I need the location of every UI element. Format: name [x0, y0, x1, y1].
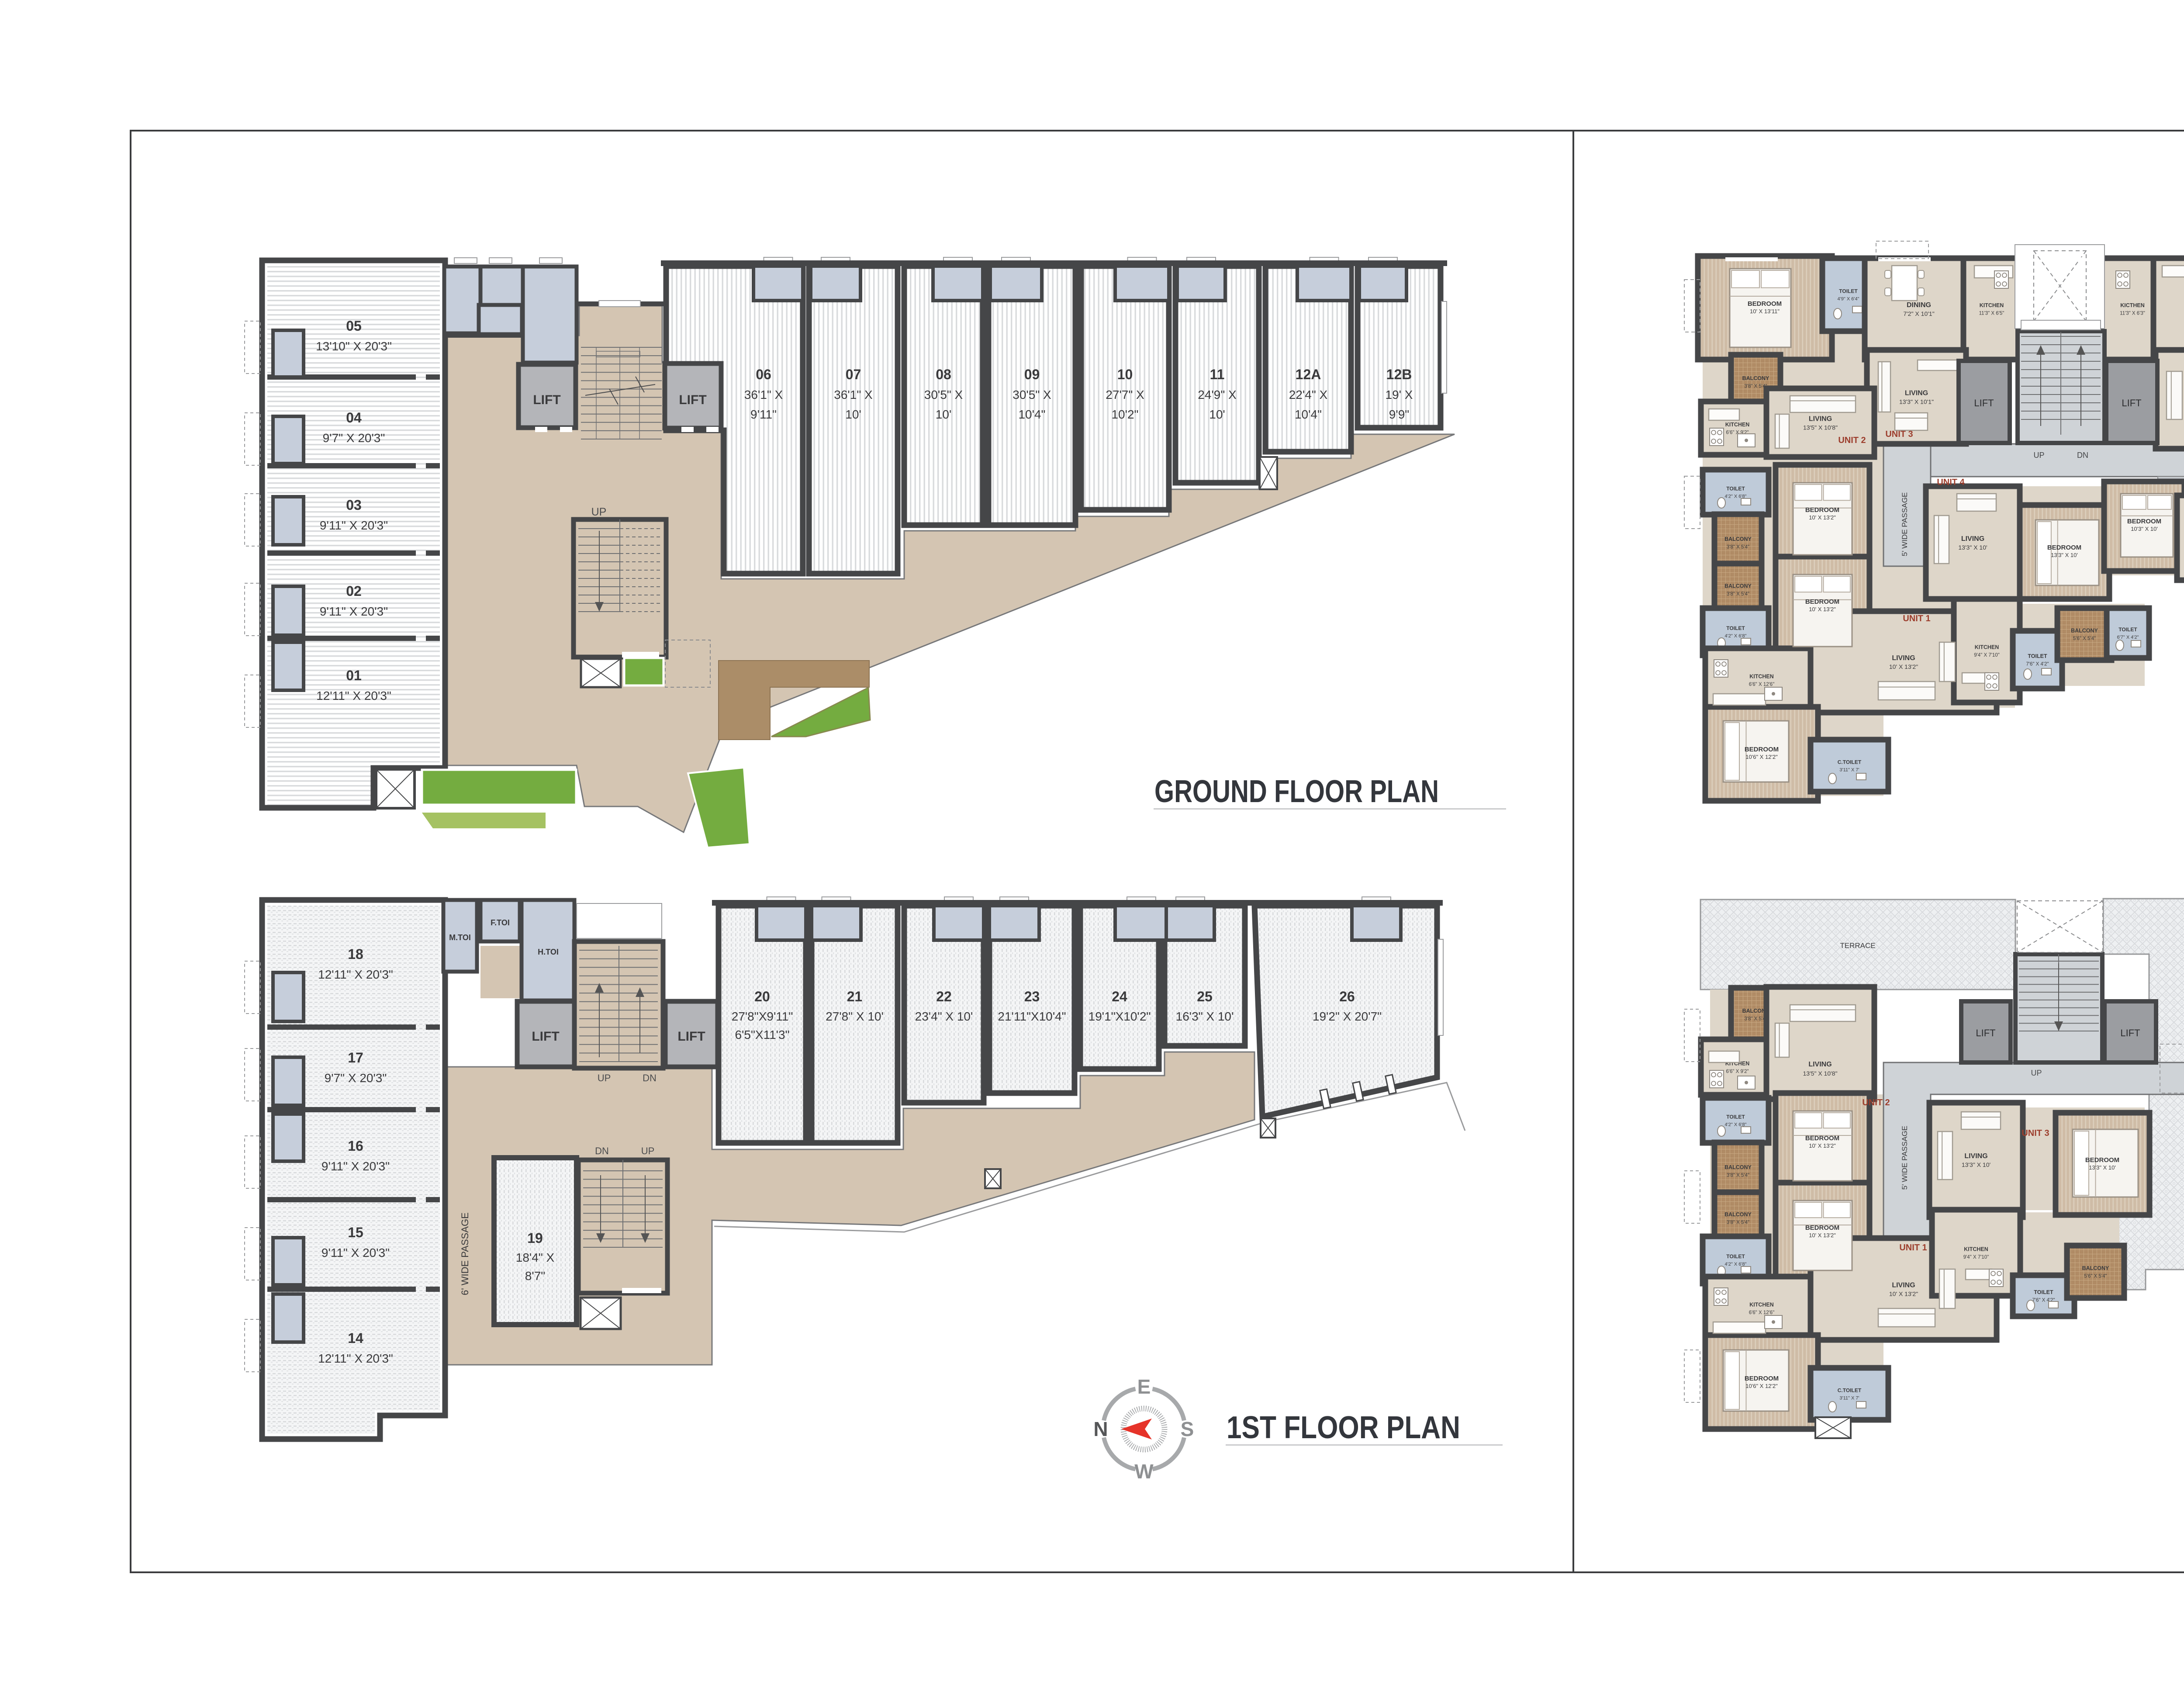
svg-text:27'8"X9'11": 27'8"X9'11" — [732, 1010, 793, 1023]
svg-text:12'11" X 20'3": 12'11" X 20'3" — [316, 689, 391, 702]
svg-text:UNIT 1: UNIT 1 — [1903, 614, 1930, 623]
svg-text:9'11": 9'11" — [750, 408, 777, 421]
svg-text:BEDROOM: BEDROOM — [1745, 746, 1779, 753]
svg-text:10' X 13'11": 10' X 13'11" — [1750, 308, 1780, 315]
svg-text:11'3" X 6'3": 11'3" X 6'3" — [2120, 311, 2145, 316]
svg-text:9'9": 9'9" — [1389, 408, 1409, 421]
svg-text:BALCONY: BALCONY — [1724, 536, 1752, 542]
svg-text:UNIT 3: UNIT 3 — [1885, 429, 1913, 439]
svg-text:24: 24 — [1112, 989, 1127, 1004]
svg-text:11: 11 — [1210, 367, 1225, 382]
svg-text:21: 21 — [847, 989, 863, 1004]
svg-text:BEDROOM: BEDROOM — [2085, 1156, 2119, 1164]
svg-text:KITCHEN: KITCHEN — [1749, 674, 1774, 680]
svg-text:LIVING: LIVING — [1961, 535, 1984, 543]
svg-text:12A: 12A — [1296, 367, 1321, 382]
svg-text:BEDROOM: BEDROOM — [1745, 1375, 1779, 1382]
svg-text:TOILET: TOILET — [1839, 288, 1858, 294]
svg-text:16: 16 — [348, 1138, 363, 1154]
svg-text:13'3" X 10': 13'3" X 10' — [1962, 1161, 1990, 1168]
svg-text:27'8" X 10': 27'8" X 10' — [826, 1010, 884, 1023]
svg-text:9'11" X 20'3": 9'11" X 20'3" — [321, 1246, 390, 1260]
svg-text:TOILET: TOILET — [1726, 486, 1745, 492]
svg-text:26: 26 — [1339, 989, 1355, 1004]
svg-text:GROUND FLOOR PLAN: GROUND FLOOR PLAN — [1154, 774, 1439, 809]
svg-text:15: 15 — [348, 1225, 363, 1240]
svg-text:10'6" X 12'2": 10'6" X 12'2" — [1745, 754, 1778, 760]
svg-text:9'4" X 7'10": 9'4" X 7'10" — [1963, 1255, 1989, 1260]
svg-text:06: 06 — [756, 367, 771, 382]
svg-text:13'3" X 10'1": 13'3" X 10'1" — [1899, 398, 1934, 405]
svg-text:19' X: 19' X — [1386, 388, 1413, 401]
svg-text:23: 23 — [1024, 989, 1040, 1004]
svg-text:9'11" X 20'3": 9'11" X 20'3" — [321, 1159, 390, 1173]
svg-text:07: 07 — [846, 367, 861, 382]
svg-text:19'2" X 20'7": 19'2" X 20'7" — [1313, 1010, 1382, 1023]
svg-text:9'7" X 20'3": 9'7" X 20'3" — [323, 431, 385, 445]
svg-text:8'7": 8'7" — [525, 1269, 545, 1283]
svg-text:10' X 13'2": 10' X 13'2" — [1809, 606, 1836, 612]
svg-text:BALCONY: BALCONY — [1742, 375, 1769, 381]
svg-text:10': 10' — [845, 408, 861, 421]
svg-text:13'5" X 10'8": 13'5" X 10'8" — [1803, 1070, 1837, 1077]
svg-text:UP: UP — [591, 506, 607, 518]
svg-text:LIFT: LIFT — [2122, 398, 2141, 408]
svg-text:3'8" X 5'4": 3'8" X 5'4" — [1727, 1173, 1749, 1178]
svg-text:10' X 13'2": 10' X 13'2" — [1889, 663, 1918, 670]
svg-text:4'9" X 6'4": 4'9" X 6'4" — [1838, 297, 1859, 302]
svg-text:LIFT: LIFT — [533, 393, 560, 407]
svg-text:S: S — [1181, 1418, 1194, 1440]
svg-text:TOILET: TOILET — [2034, 1289, 2053, 1295]
svg-text:1ST FLOOR PLAN: 1ST FLOOR PLAN — [1227, 1410, 1460, 1445]
svg-text:13'3" X 10': 13'3" X 10' — [1958, 544, 1987, 551]
svg-text:3'11" X 7': 3'11" X 7' — [1839, 1396, 1859, 1401]
svg-text:LIFT: LIFT — [1976, 1028, 1995, 1038]
svg-text:KITCHEN: KITCHEN — [1980, 302, 2004, 308]
svg-text:BEDROOM: BEDROOM — [1805, 506, 1839, 514]
svg-text:18'4" X: 18'4" X — [516, 1251, 555, 1264]
svg-text:BALCONY: BALCONY — [1724, 1211, 1752, 1218]
svg-text:09: 09 — [1024, 367, 1040, 382]
svg-text:10' X 13'2": 10' X 13'2" — [1809, 1142, 1836, 1149]
svg-text:6'5"X11'3": 6'5"X11'3" — [735, 1028, 789, 1042]
svg-text:W: W — [1134, 1460, 1154, 1483]
svg-text:5'6" X 5'4": 5'6" X 5'4" — [2073, 636, 2096, 641]
svg-text:UNIT 3: UNIT 3 — [2022, 1128, 2049, 1138]
svg-text:10'3" X 10': 10'3" X 10' — [2131, 526, 2158, 532]
svg-text:17: 17 — [348, 1050, 363, 1066]
svg-text:KITCHEN: KITCHEN — [1975, 644, 1999, 651]
svg-text:LIVING: LIVING — [1892, 1282, 1915, 1289]
svg-text:LIVING: LIVING — [1905, 390, 1928, 397]
svg-text:KICTHEN: KICTHEN — [2120, 302, 2145, 308]
svg-text:TOILET: TOILET — [2028, 653, 2047, 659]
svg-text:BEDROOM: BEDROOM — [2047, 544, 2081, 551]
svg-text:30'5" X: 30'5" X — [924, 388, 963, 401]
svg-text:21'11"X10'4": 21'11"X10'4" — [998, 1010, 1066, 1023]
svg-text:H.TOI: H.TOI — [538, 948, 559, 956]
svg-text:13'5" X 10'8": 13'5" X 10'8" — [1803, 424, 1838, 431]
svg-text:01: 01 — [346, 668, 362, 683]
svg-text:KITCHEN: KITCHEN — [1749, 1302, 1774, 1308]
svg-text:5'6" X 5'4": 5'6" X 5'4" — [2084, 1274, 2107, 1279]
svg-text:03: 03 — [346, 497, 362, 513]
svg-text:UNIT 2: UNIT 2 — [1862, 1098, 1890, 1107]
svg-text:6'6" X 9'2": 6'6" X 9'2" — [1726, 1069, 1749, 1074]
svg-text:9'7" X 20'3": 9'7" X 20'3" — [325, 1071, 387, 1085]
svg-text:7'2" X 10'1": 7'2" X 10'1" — [1903, 310, 1934, 317]
svg-text:10': 10' — [1209, 408, 1225, 421]
svg-text:LIFT: LIFT — [677, 1029, 705, 1044]
svg-text:C.TOILET: C.TOILET — [1838, 1388, 1862, 1394]
svg-text:36'1" X: 36'1" X — [744, 388, 783, 401]
svg-text:TOILET: TOILET — [1726, 1114, 1745, 1120]
svg-text:DN: DN — [595, 1145, 609, 1156]
svg-text:BEDROOM: BEDROOM — [1805, 1135, 1839, 1142]
svg-text:9'4" X 7'10": 9'4" X 7'10" — [1974, 653, 2000, 658]
svg-text:5' WIDE PASSAGE: 5' WIDE PASSAGE — [1901, 1126, 1909, 1190]
svg-text:TERRACE: TERRACE — [1840, 941, 1875, 950]
svg-text:C.TOILET: C.TOILET — [1838, 759, 1862, 765]
svg-text:14: 14 — [348, 1330, 363, 1346]
svg-text:BEDROOM: BEDROOM — [2127, 518, 2161, 525]
svg-text:12'11" X 20'3": 12'11" X 20'3" — [318, 1352, 393, 1365]
svg-text:LIVING: LIVING — [1809, 415, 1832, 423]
svg-text:11'3" X 6'5": 11'3" X 6'5" — [1979, 311, 2004, 316]
svg-text:9'11" X 20'3": 9'11" X 20'3" — [320, 519, 388, 532]
svg-text:DINING: DINING — [1907, 301, 1931, 309]
svg-text:BEDROOM: BEDROOM — [1805, 1224, 1839, 1232]
svg-text:N: N — [1093, 1418, 1108, 1440]
svg-text:BALCONY: BALCONY — [2082, 1265, 2109, 1271]
svg-text:02: 02 — [346, 583, 362, 599]
svg-text:10' X 13'2": 10' X 13'2" — [1889, 1291, 1918, 1298]
svg-text:3'11" X 7': 3'11" X 7' — [1839, 768, 1859, 773]
svg-text:7'6" X 4'2": 7'6" X 4'2" — [2026, 662, 2049, 667]
svg-text:13'3" X 10': 13'3" X 10' — [2051, 552, 2078, 558]
svg-text:BEDROOM: BEDROOM — [1805, 598, 1839, 606]
svg-text:13'3" X 10': 13'3" X 10' — [2089, 1164, 2116, 1171]
svg-text:25: 25 — [1197, 989, 1213, 1004]
svg-text:3'8" X 5'4": 3'8" X 5'4" — [1727, 545, 1749, 550]
svg-text:DN: DN — [643, 1073, 657, 1083]
svg-text:36'1" X: 36'1" X — [834, 388, 873, 401]
svg-text:LIFT: LIFT — [2120, 1028, 2140, 1038]
svg-text:10' X 13'2": 10' X 13'2" — [1809, 1232, 1836, 1239]
svg-text:12'11" X 20'3": 12'11" X 20'3" — [318, 968, 393, 981]
svg-text:19: 19 — [527, 1230, 543, 1246]
svg-text:05: 05 — [346, 318, 362, 334]
svg-text:6'6" X 12'6": 6'6" X 12'6" — [1749, 682, 1775, 687]
svg-text:3'8" X 5'4": 3'8" X 5'4" — [1727, 1220, 1749, 1225]
svg-text:M.TOI: M.TOI — [449, 933, 471, 942]
svg-text:LIVING: LIVING — [1964, 1152, 1987, 1160]
svg-text:BALCONY: BALCONY — [1724, 1164, 1752, 1170]
svg-text:UP: UP — [2031, 1069, 2042, 1077]
svg-text:08: 08 — [936, 367, 951, 382]
svg-text:10'2": 10'2" — [1111, 408, 1138, 421]
svg-text:13'10" X 20'3": 13'10" X 20'3" — [316, 339, 392, 353]
svg-text:BALCONY: BALCONY — [2071, 628, 2098, 634]
svg-text:UNIT 4: UNIT 4 — [1937, 478, 1965, 487]
svg-text:UP: UP — [598, 1073, 611, 1083]
svg-text:5' WIDE PASSAGE: 5' WIDE PASSAGE — [1901, 492, 1909, 557]
svg-text:TOILET: TOILET — [1726, 625, 1745, 631]
svg-text:DN: DN — [2077, 451, 2088, 460]
svg-text:10: 10 — [1117, 367, 1133, 382]
svg-text:10'6" X 12'2": 10'6" X 12'2" — [1745, 1383, 1778, 1389]
svg-text:16'3" X 10': 16'3" X 10' — [1176, 1010, 1234, 1023]
svg-text:22: 22 — [936, 989, 952, 1004]
svg-text:UNIT 1: UNIT 1 — [1899, 1243, 1927, 1253]
svg-text:18: 18 — [348, 946, 363, 962]
svg-text:30'5" X: 30'5" X — [1013, 388, 1051, 401]
svg-text:UP: UP — [2033, 451, 2044, 460]
svg-text:LIFT: LIFT — [1974, 398, 1994, 408]
svg-text:LIVING: LIVING — [1892, 654, 1915, 662]
svg-text:12B: 12B — [1386, 367, 1412, 382]
svg-text:E: E — [1137, 1375, 1151, 1398]
svg-text:BEDROOM: BEDROOM — [1748, 300, 1782, 308]
svg-text:UNIT 2: UNIT 2 — [1838, 436, 1866, 445]
svg-text:9'11" X 20'3": 9'11" X 20'3" — [320, 605, 388, 618]
svg-text:22'4" X: 22'4" X — [1289, 388, 1328, 401]
svg-text:20: 20 — [754, 989, 770, 1004]
svg-text:27'7" X: 27'7" X — [1106, 388, 1144, 401]
svg-text:KITCHEN: KITCHEN — [1964, 1246, 1988, 1253]
svg-text:10'4": 10'4" — [1295, 408, 1322, 421]
svg-text:10': 10' — [936, 408, 952, 421]
svg-text:F.TOI: F.TOI — [491, 918, 510, 927]
svg-text:10'4": 10'4" — [1018, 408, 1045, 421]
svg-text:LIFT: LIFT — [679, 393, 706, 407]
svg-text:23'4" X 10': 23'4" X 10' — [915, 1010, 973, 1023]
svg-text:04: 04 — [346, 410, 362, 426]
svg-text:6' WIDE PASSAGE: 6' WIDE PASSAGE — [460, 1212, 470, 1295]
svg-text:KITCHEN: KITCHEN — [1725, 422, 1750, 428]
svg-text:TOILET: TOILET — [1726, 1253, 1745, 1260]
svg-text:10' X 13'2": 10' X 13'2" — [1809, 514, 1836, 521]
svg-text:3'8" X 5'4": 3'8" X 5'4" — [1727, 592, 1749, 597]
svg-text:TOILET: TOILET — [2118, 626, 2137, 633]
svg-text:LIVING: LIVING — [1808, 1061, 1832, 1068]
svg-text:LIFT: LIFT — [532, 1029, 559, 1044]
svg-text:6'7" X 4'2": 6'7" X 4'2" — [2117, 635, 2139, 640]
svg-text:6'6" X 12'6": 6'6" X 12'6" — [1749, 1310, 1775, 1315]
svg-text:UP: UP — [641, 1145, 655, 1156]
svg-text:19'1"X10'2": 19'1"X10'2" — [1089, 1010, 1151, 1023]
svg-text:24'9" X: 24'9" X — [1198, 388, 1237, 401]
svg-text:BALCONY: BALCONY — [1724, 583, 1752, 589]
